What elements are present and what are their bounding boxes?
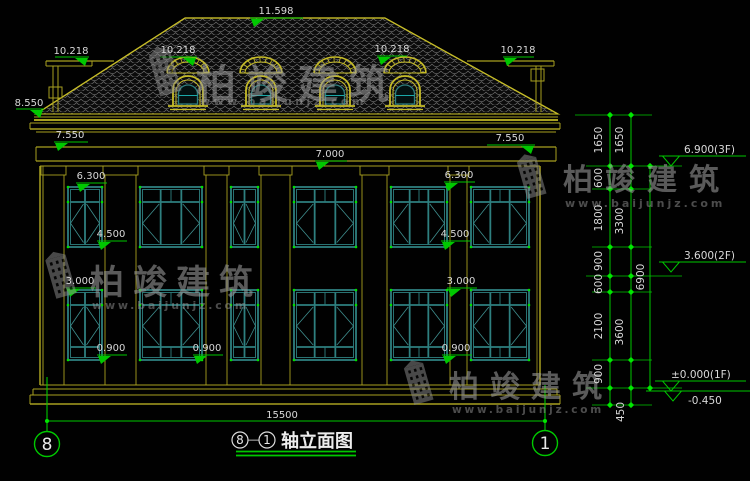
dim-ridge: 11.598 (259, 6, 294, 17)
window (390, 289, 449, 362)
dim-dormer-left: 10.218 (161, 45, 196, 56)
dim-lintel-1f-left: 3.000 (66, 276, 95, 287)
chain-inner-0: 1650 (593, 127, 605, 154)
axis-bubble-left-label: 8 (42, 435, 53, 455)
chain-inner-3: 900 (593, 251, 605, 271)
cad-elevation-drawing: 柏竣建筑 www.baijunjz.com 柏竣建筑 www.baijunjz.… (0, 0, 750, 481)
dim-dormer-right: 10.218 (375, 44, 410, 55)
watermark-url: www.baijunjz.com (565, 197, 725, 210)
dim-main-eave: 8.550 (15, 98, 44, 109)
chain-middle-1: 3300 (614, 208, 626, 235)
window (390, 186, 449, 249)
title-axis-from: 8 (236, 433, 244, 447)
window (139, 186, 204, 249)
dim-total-width: 15500 (266, 410, 298, 421)
level-1f: ±0.000(1F) (671, 369, 731, 381)
chain-inner-6: 900 (593, 364, 605, 384)
watermark-url: www.baijunjz.com (200, 95, 367, 108)
chain-middle-0: 1650 (614, 127, 626, 154)
watermark-brand: 柏竣建筑 (449, 370, 613, 405)
dim-parapet-left: 7.550 (56, 130, 85, 141)
dim-sill-1f-mid: 0.900 (193, 343, 222, 354)
window (293, 289, 358, 362)
drawing-title: 轴立面图 (281, 430, 353, 452)
elevation-drawing-svg: 柏竣建筑 www.baijunjz.com 柏竣建筑 www.baijunjz.… (0, 0, 750, 481)
title-axis-to: 1 (263, 433, 271, 447)
axis-bubble-right-label: 1 (540, 434, 551, 454)
chain-outer-0: 6900 (635, 264, 647, 291)
watermark-brand: 柏竣建筑 (563, 163, 731, 198)
dim-side-eave-left: 10.218 (54, 46, 89, 57)
window (293, 186, 358, 249)
level-ground: -0.450 (688, 395, 722, 407)
dim-sill-2f-right: 4.500 (441, 229, 470, 240)
dim-side-eave-right: 10.218 (501, 45, 536, 56)
level-3f: 6.900(3F) (684, 144, 735, 156)
watermark-url: www.baijunjz.com (452, 404, 604, 416)
dim-lintel-2f-left: 6.300 (77, 171, 106, 182)
chain-middle-3: 450 (615, 402, 627, 422)
watermark-brand: 柏竣建筑 (90, 263, 262, 303)
window (470, 289, 531, 362)
chain-inner-2: 1800 (593, 205, 605, 232)
dim-lintel-1f-right: 3.000 (447, 276, 476, 287)
dim-sill-2f-left: 4.500 (97, 229, 126, 240)
chain-inner-1: 600 (593, 168, 605, 188)
chain-middle-2: 3600 (614, 319, 626, 346)
level-2f: 3.600(2F) (684, 250, 735, 262)
dim-frieze-center: 7.000 (316, 149, 345, 160)
window (470, 186, 531, 249)
chain-inner-5: 2100 (593, 313, 605, 340)
window (230, 186, 260, 249)
title-separator: — (248, 433, 259, 446)
dim-lintel-2f-right: 6.300 (445, 170, 474, 181)
dim-sill-1f-left: 0.900 (97, 343, 126, 354)
chain-inner-4: 600 (593, 274, 605, 294)
dim-parapet-right: 7.550 (496, 133, 525, 144)
dim-sill-1f-right: 0.900 (442, 343, 471, 354)
watermark-url: www.baijunjz.com (92, 299, 249, 312)
